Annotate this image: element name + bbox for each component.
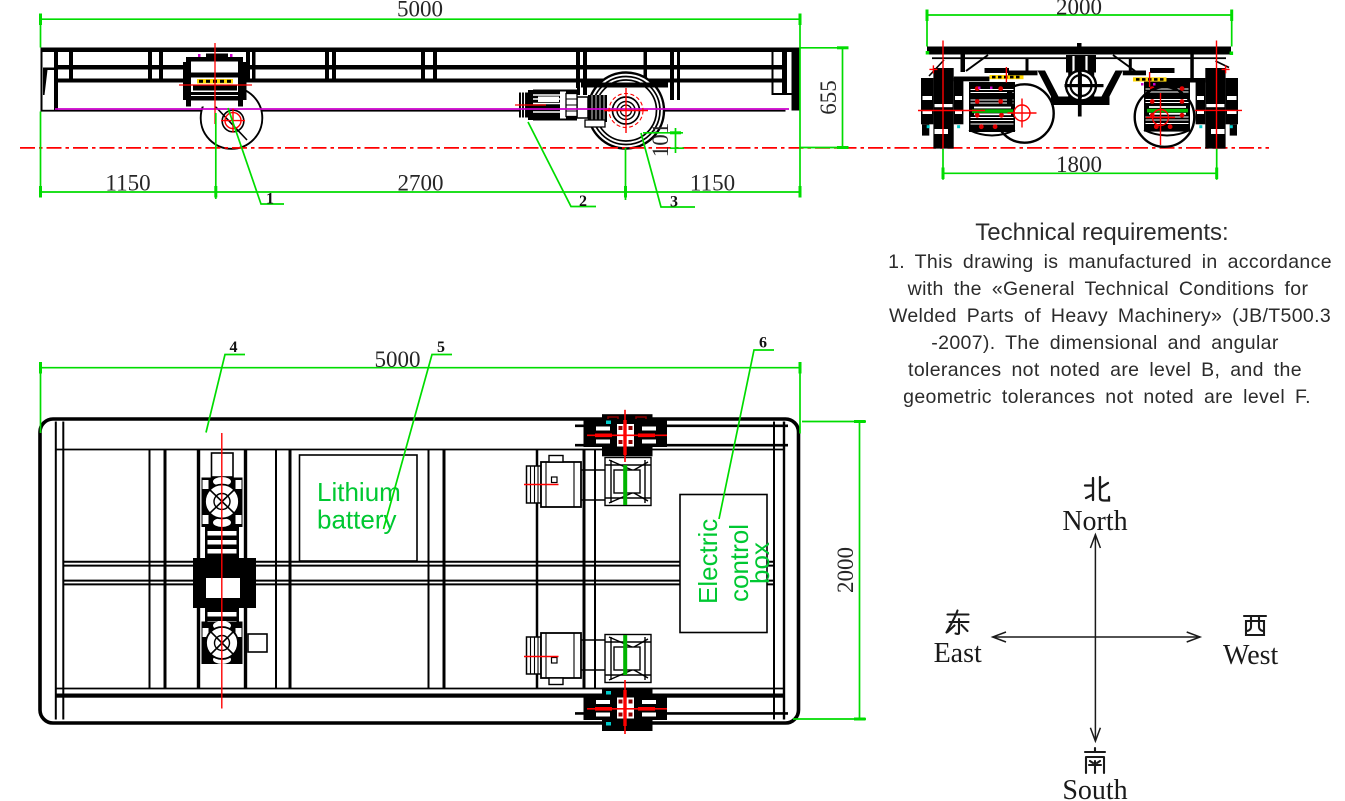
svg-text:tolerances not noted are level: tolerances not noted are level B, and th… [908,359,1302,381]
svg-text:Lithium: Lithium [317,477,401,507]
svg-text:geometric tolerances not noted: geometric tolerances not noted are level… [903,386,1311,408]
svg-text:6: 6 [759,335,767,352]
svg-text:5: 5 [437,339,445,356]
svg-text:655: 655 [816,80,841,115]
svg-text:2000: 2000 [833,547,858,593]
svg-text:West: West [1223,640,1279,671]
svg-text:South: South [1062,775,1127,801]
svg-text:1150: 1150 [105,171,150,196]
svg-text:with the «General Technical Co: with the «General Technical Conditions f… [907,278,1309,300]
svg-text:1150: 1150 [690,171,735,196]
svg-text:Electric: Electric [693,519,723,604]
svg-text:1800: 1800 [1056,152,1102,177]
svg-text:Technical requirements:: Technical requirements: [975,219,1228,246]
svg-text:2000: 2000 [1056,0,1102,20]
svg-text:1: 1 [266,191,274,208]
svg-text:101: 101 [648,123,673,158]
svg-text:battery: battery [317,505,397,535]
svg-text:North: North [1062,506,1127,537]
svg-text:2: 2 [579,193,587,210]
svg-text:5000: 5000 [397,0,443,22]
svg-text:2700: 2700 [398,171,444,196]
svg-text:box: box [745,542,775,584]
svg-text:4: 4 [230,339,238,356]
svg-text:Welded Parts of Heavy Machiner: Welded Parts of Heavy Machinery» (JB/T50… [889,305,1331,327]
svg-text:5000: 5000 [375,347,421,372]
svg-text:-2007). The dimensional and an: -2007). The dimensional and angular [931,332,1279,354]
svg-text:East: East [934,638,982,669]
svg-text:1. This drawing is manufacture: 1. This drawing is manufactured in accor… [888,251,1332,273]
svg-text:3: 3 [670,194,678,211]
